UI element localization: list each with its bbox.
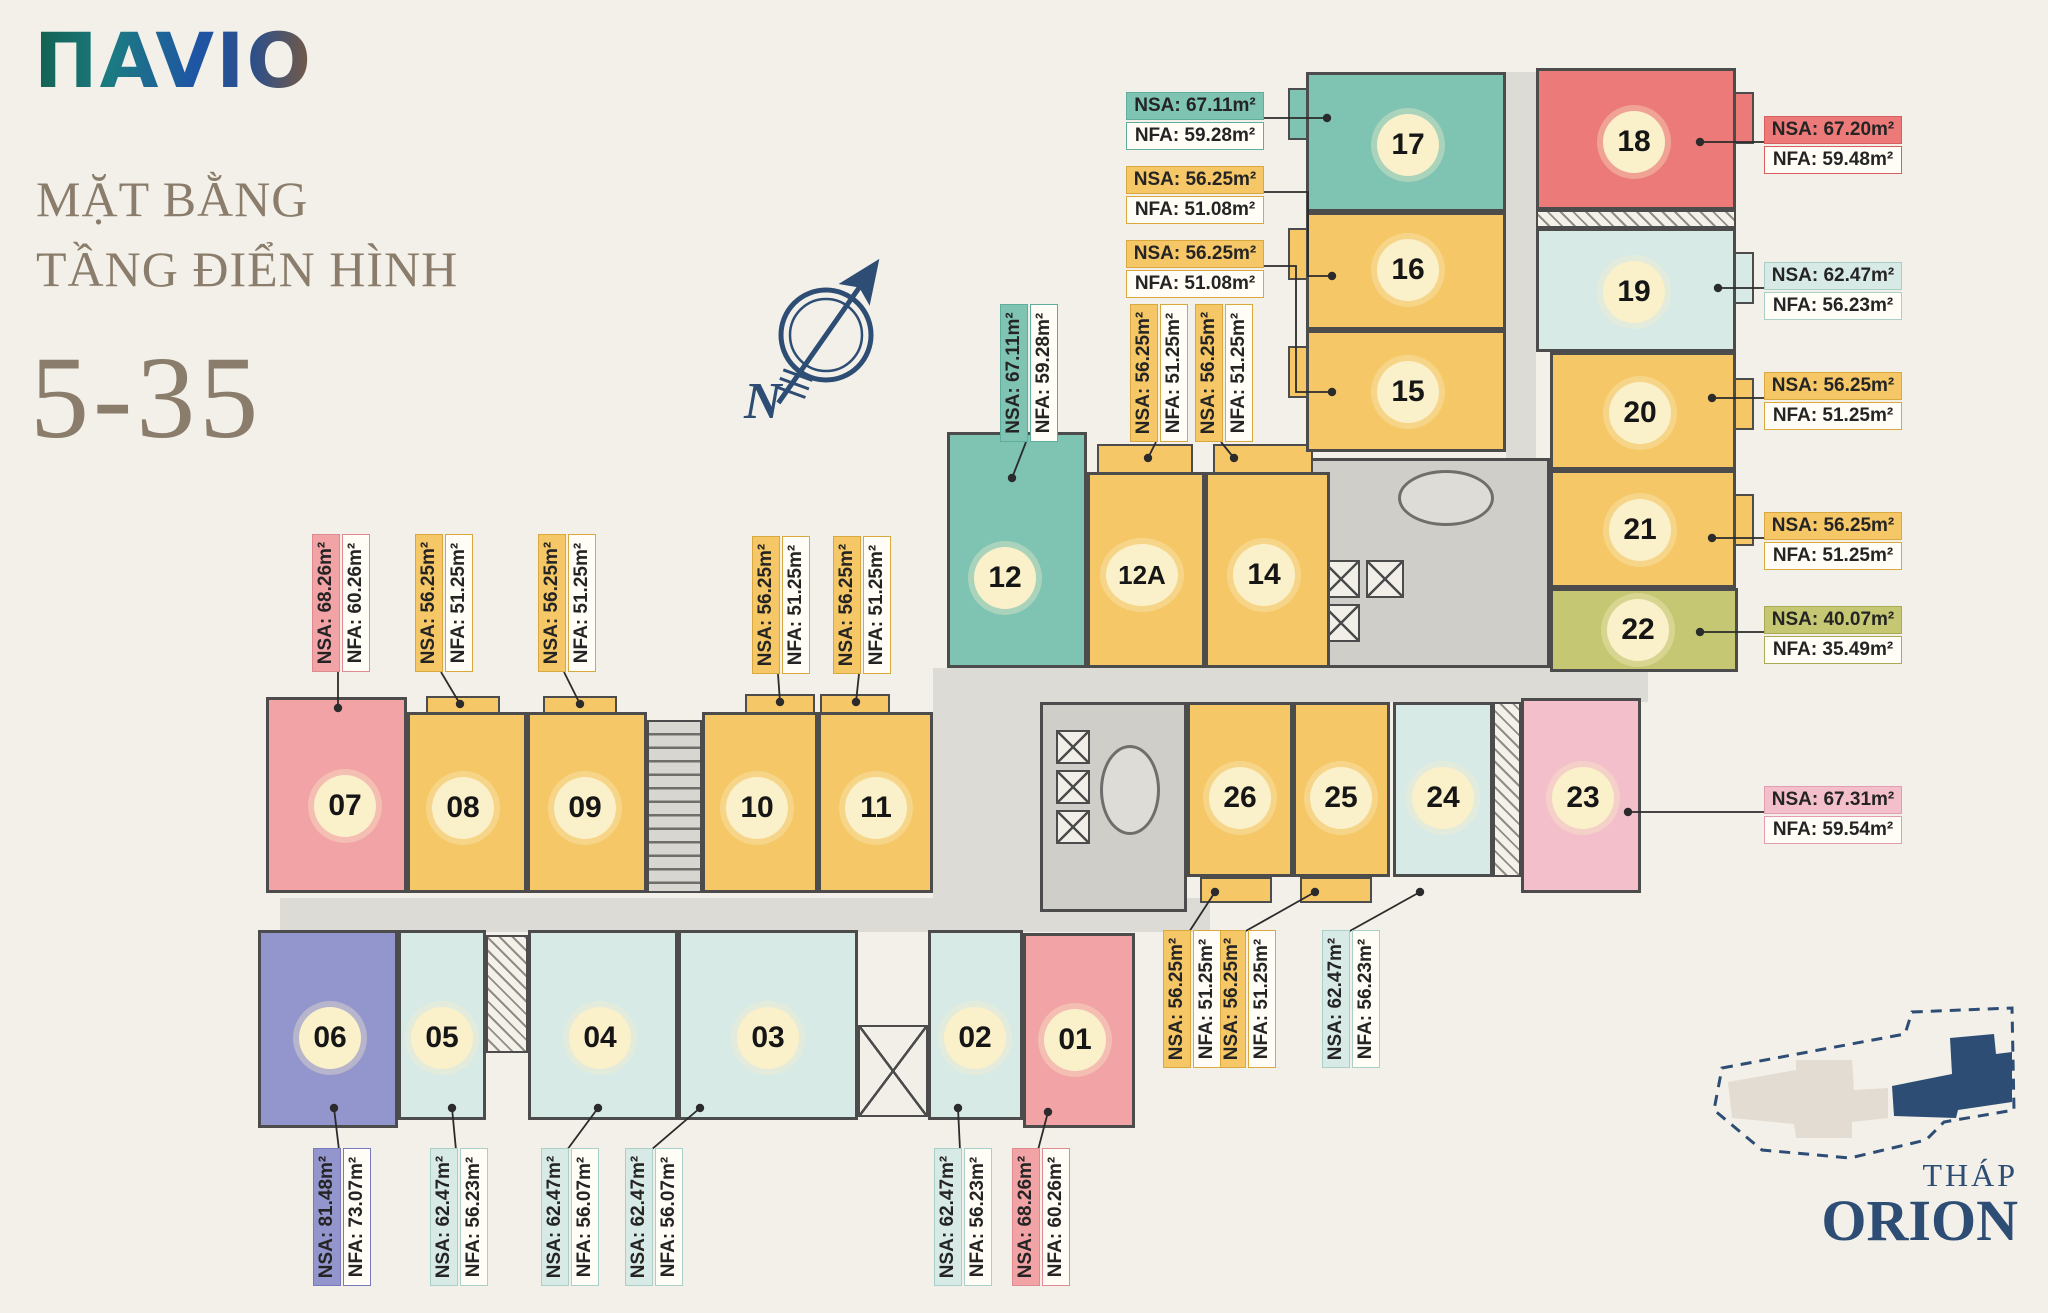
nfa-area-value: NFA: 51.25m² [863, 536, 891, 674]
area-label-chips: NSA: 56.25m²NFA: 51.08m² [1126, 166, 1264, 224]
nsa-area-value: NSA: 68.26m² [312, 534, 340, 672]
area-label-01: NSA: 68.26m²NFA: 60.26m² [1012, 1150, 1068, 1286]
balcony [1288, 228, 1308, 280]
area-label-chips: NSA: 67.11m²NFA: 59.28m² [1126, 92, 1264, 150]
area-label-26: NSA: 56.25m²NFA: 51.25m² [1163, 932, 1219, 1068]
unit-number-badge: 14 [1233, 544, 1295, 606]
orion-tower-footprint [1892, 1034, 2012, 1118]
area-label-chips: NSA: 40.07m²NFA: 35.49m² [1764, 606, 1902, 664]
nfa-area-value: NFA: 60.26m² [1042, 1148, 1070, 1286]
area-label-08: NSA: 56.25m²NFA: 51.25m² [415, 536, 471, 672]
unit-number-badge: 20 [1609, 382, 1671, 444]
area-label-chips: NSA: 56.25m²NFA: 51.25m² [538, 534, 596, 672]
area-label-10: NSA: 56.25m²NFA: 51.25m² [752, 538, 808, 674]
nsa-area-value: NSA: 62.47m² [430, 1148, 458, 1286]
unit-number-badge: 19 [1603, 261, 1665, 323]
area-label-chips: NSA: 56.25m²NFA: 51.25m² [833, 536, 891, 674]
area-label-chips: NSA: 56.25m²NFA: 51.25m² [1195, 304, 1253, 442]
nsa-area-value: NSA: 56.25m² [1195, 304, 1223, 442]
area-label-chips: NSA: 62.47m²NFA: 56.07m² [625, 1148, 683, 1286]
elevator-shaft-icon [1056, 730, 1090, 764]
balcony [1734, 252, 1754, 304]
area-label-12A: NSA: 56.25m²NFA: 51.25m² [1130, 306, 1186, 442]
area-label-chips: NSA: 67.11m²NFA: 59.28m² [1000, 304, 1058, 442]
floor-range: 5-35 [30, 330, 262, 466]
unit-number-badge: 15 [1377, 361, 1439, 423]
nfa-area-value: NFA: 51.08m² [1126, 196, 1264, 224]
nsa-area-value: NSA: 81.48m² [313, 1148, 341, 1286]
staircase-icon [1100, 745, 1160, 835]
nfa-area-value: NFA: 51.08m² [1126, 270, 1264, 298]
nsa-area-value: NSA: 56.25m² [415, 534, 443, 672]
area-label-03: NSA: 62.47m²NFA: 56.07m² [625, 1150, 681, 1286]
unit-number-badge: 16 [1377, 239, 1439, 301]
balcony [1200, 877, 1272, 903]
staircase-icon [1398, 470, 1494, 526]
nfa-area-value: NFA: 56.23m² [460, 1148, 488, 1286]
balcony [1288, 88, 1308, 140]
area-label-06: NSA: 81.48m²NFA: 73.07m² [313, 1150, 369, 1286]
nsa-area-value: NSA: 56.25m² [752, 536, 780, 674]
area-label-chips: NSA: 56.25m²NFA: 51.25m² [1764, 372, 1902, 430]
nfa-area-value: NFA: 73.07m² [343, 1148, 371, 1286]
area-label-chips: NSA: 56.25m²NFA: 51.25m² [1764, 512, 1902, 570]
unit-number-badge: 18 [1603, 111, 1665, 173]
area-label-chips: NSA: 56.25m²NFA: 51.25m² [1218, 930, 1276, 1068]
elevator-shaft-icon [1366, 560, 1404, 598]
unit-number-badge: 21 [1609, 499, 1671, 561]
nsa-area-value: NSA: 56.25m² [1130, 304, 1158, 442]
area-label-11: NSA: 56.25m²NFA: 51.25m² [833, 538, 889, 674]
unit-number-badge: 09 [554, 777, 616, 839]
nsa-area-value: NSA: 40.07m² [1764, 606, 1902, 634]
area-label-07: NSA: 68.26m²NFA: 60.26m² [312, 536, 368, 672]
nsa-area-value: NSA: 56.25m² [1126, 240, 1264, 268]
unit-number-badge: 06 [299, 1007, 361, 1069]
area-label-16: NSA: 56.25m²NFA: 51.08m² [1126, 166, 1262, 222]
area-label-chips: NSA: 62.47m²NFA: 56.07m² [541, 1148, 599, 1286]
brand-logo: ΠAVIO [34, 16, 313, 105]
nfa-area-value: NFA: 56.23m² [1764, 292, 1902, 320]
area-label-chips: NSA: 62.47m²NFA: 56.23m² [430, 1148, 488, 1286]
corridor [933, 668, 1040, 932]
area-label-chips: NSA: 62.47m²NFA: 56.23m² [1322, 930, 1380, 1068]
nsa-area-value: NSA: 68.26m² [1012, 1148, 1040, 1286]
unit-number-badge: 12A [1106, 544, 1178, 606]
keyplan-label-line2: ORION [1821, 1188, 2018, 1253]
unit-number-badge: 04 [569, 1007, 631, 1069]
nsa-area-value: NSA: 67.31m² [1764, 786, 1902, 814]
nfa-area-value: NFA: 59.28m² [1126, 122, 1264, 150]
nsa-area-value: NSA: 67.11m² [1000, 304, 1028, 442]
nfa-area-value: NFA: 59.28m² [1030, 304, 1058, 442]
shaft-hatch [1493, 702, 1521, 877]
balcony [1734, 494, 1754, 546]
nfa-area-value: NFA: 51.25m² [1764, 402, 1902, 430]
unit-number-badge: 25 [1310, 767, 1372, 829]
area-label-25: NSA: 56.25m²NFA: 51.25m² [1218, 932, 1274, 1068]
nsa-area-value: NSA: 67.11m² [1126, 92, 1264, 120]
area-label-14: NSA: 56.25m²NFA: 51.25m² [1195, 306, 1251, 442]
tower-location-keyplan: THÁP ORION [1700, 988, 2035, 1278]
nsa-area-value: NSA: 62.47m² [934, 1148, 962, 1286]
area-label-20: NSA: 56.25m²NFA: 51.25m² [1764, 372, 1900, 428]
nsa-area-value: NSA: 56.25m² [1764, 512, 1902, 540]
unit-number-badge: 05 [411, 1007, 473, 1069]
nfa-area-value: NFA: 51.25m² [1764, 542, 1902, 570]
nfa-area-value: NFA: 35.49m² [1764, 636, 1902, 664]
elevator-shaft-icon [858, 1025, 928, 1117]
balcony [1213, 444, 1313, 474]
area-label-chips: NSA: 62.47m²NFA: 56.23m² [1764, 262, 1902, 320]
nfa-area-value: NFA: 56.23m² [964, 1148, 992, 1286]
area-label-05: NSA: 62.47m²NFA: 56.23m² [430, 1150, 486, 1286]
unit-number-badge: 02 [944, 1007, 1006, 1069]
area-label-18: NSA: 67.20m²NFA: 59.48m² [1764, 116, 1900, 172]
area-label-chips: NSA: 56.25m²NFA: 51.25m² [1130, 304, 1188, 442]
elevator-shaft-icon [1056, 810, 1090, 844]
nfa-area-value: NFA: 51.25m² [1248, 930, 1276, 1068]
balcony [1288, 346, 1308, 398]
nsa-area-value: NSA: 62.47m² [1764, 262, 1902, 290]
balcony [1300, 877, 1372, 903]
balcony [745, 694, 815, 714]
area-label-chips: NSA: 62.47m²NFA: 56.23m² [934, 1148, 992, 1286]
nsa-area-value: NSA: 62.47m² [625, 1148, 653, 1286]
adjacent-tower-footprint [1728, 1060, 1888, 1138]
unit-number-badge: 22 [1607, 599, 1669, 661]
area-label-23: NSA: 67.31m²NFA: 59.54m² [1764, 786, 1900, 842]
nsa-area-value: NSA: 62.47m² [541, 1148, 569, 1286]
nfa-area-value: NFA: 56.07m² [571, 1148, 599, 1286]
unit-number-badge: 24 [1412, 767, 1474, 829]
nsa-area-value: NSA: 56.25m² [1764, 372, 1902, 400]
area-label-chips: NSA: 68.26m²NFA: 60.26m² [1012, 1148, 1070, 1286]
nfa-area-value: NFA: 59.48m² [1764, 146, 1902, 174]
balcony [1734, 378, 1754, 430]
nsa-area-value: NSA: 56.25m² [1163, 930, 1191, 1068]
balcony [1097, 444, 1193, 474]
area-label-chips: NSA: 68.26m²NFA: 60.26m² [312, 534, 370, 672]
nsa-area-value: NSA: 56.25m² [833, 536, 861, 674]
balcony [820, 694, 890, 714]
plan-title-line2: TẦNG ĐIỂN HÌNH [36, 240, 458, 298]
area-label-09: NSA: 56.25m²NFA: 51.25m² [538, 536, 594, 672]
nfa-area-value: NFA: 51.25m² [782, 536, 810, 674]
area-label-12: NSA: 67.11m²NFA: 59.28m² [1000, 306, 1056, 442]
corridor [1506, 72, 1536, 458]
nsa-area-value: NSA: 56.25m² [1126, 166, 1264, 194]
nfa-area-value: NFA: 56.23m² [1352, 930, 1380, 1068]
area-label-15: NSA: 56.25m²NFA: 51.08m² [1126, 240, 1262, 296]
nsa-area-value: NSA: 67.20m² [1764, 116, 1902, 144]
area-label-17: NSA: 67.11m²NFA: 59.28m² [1126, 92, 1262, 148]
corridor [947, 668, 1648, 702]
balcony [1734, 92, 1754, 144]
elevator-shaft-icon [1056, 770, 1090, 804]
nfa-area-value: NFA: 51.25m² [1160, 304, 1188, 442]
area-label-21: NSA: 56.25m²NFA: 51.25m² [1764, 512, 1900, 568]
unit-number-badge: 17 [1377, 114, 1439, 176]
area-label-24: NSA: 62.47m²NFA: 56.23m² [1322, 932, 1378, 1068]
area-label-chips: NSA: 67.20m²NFA: 59.48m² [1764, 116, 1902, 174]
area-label-chips: NSA: 56.25m²NFA: 51.25m² [1163, 930, 1221, 1068]
nfa-area-value: NFA: 51.25m² [445, 534, 473, 672]
unit-number-badge: 23 [1552, 767, 1614, 829]
area-label-chips: NSA: 56.25m²NFA: 51.25m² [752, 536, 810, 674]
plan-title-line1: MẶT BẰNG [36, 170, 308, 228]
unit-number-badge: 01 [1044, 1009, 1106, 1071]
shaft-hatch [1536, 210, 1736, 228]
area-label-chips: NSA: 56.25m²NFA: 51.25m² [415, 534, 473, 672]
floor-plan-canvas: ΠAVIO MẶT BẰNG TẦNG ĐIỂN HÌNH 5-35 N 01N… [0, 0, 2048, 1313]
staircase-icon [647, 720, 702, 893]
shaft-hatch [486, 935, 528, 1053]
unit-number-badge: 03 [737, 1007, 799, 1069]
unit-number-badge: 10 [726, 777, 788, 839]
unit-number-badge: 08 [432, 777, 494, 839]
nsa-area-value: NSA: 62.47m² [1322, 930, 1350, 1068]
leader-dot [1416, 888, 1424, 896]
nfa-area-value: NFA: 51.25m² [1225, 304, 1253, 442]
area-label-22: NSA: 40.07m²NFA: 35.49m² [1764, 606, 1900, 662]
nfa-area-value: NFA: 59.54m² [1764, 816, 1902, 844]
compass-north-label: N [743, 373, 784, 430]
area-label-chips: NSA: 56.25m²NFA: 51.08m² [1126, 240, 1264, 298]
area-label-chips: NSA: 67.31m²NFA: 59.54m² [1764, 786, 1902, 844]
unit-number-badge: 07 [314, 775, 376, 837]
nfa-area-value: NFA: 60.26m² [342, 534, 370, 672]
unit-number-badge: 12 [974, 547, 1036, 609]
area-label-02: NSA: 62.47m²NFA: 56.23m² [934, 1150, 990, 1286]
nfa-area-value: NFA: 51.25m² [1193, 930, 1221, 1068]
nsa-area-value: NSA: 56.25m² [1218, 930, 1246, 1068]
area-label-19: NSA: 62.47m²NFA: 56.23m² [1764, 262, 1900, 318]
unit-number-badge: 11 [845, 777, 907, 839]
nsa-area-value: NSA: 56.25m² [538, 534, 566, 672]
nfa-area-value: NFA: 51.25m² [568, 534, 596, 672]
area-label-chips: NSA: 81.48m²NFA: 73.07m² [313, 1148, 371, 1286]
nfa-area-value: NFA: 56.07m² [655, 1148, 683, 1286]
unit-number-badge: 26 [1209, 767, 1271, 829]
compass-north-icon: N [738, 240, 898, 445]
area-label-04: NSA: 62.47m²NFA: 56.07m² [541, 1150, 597, 1286]
